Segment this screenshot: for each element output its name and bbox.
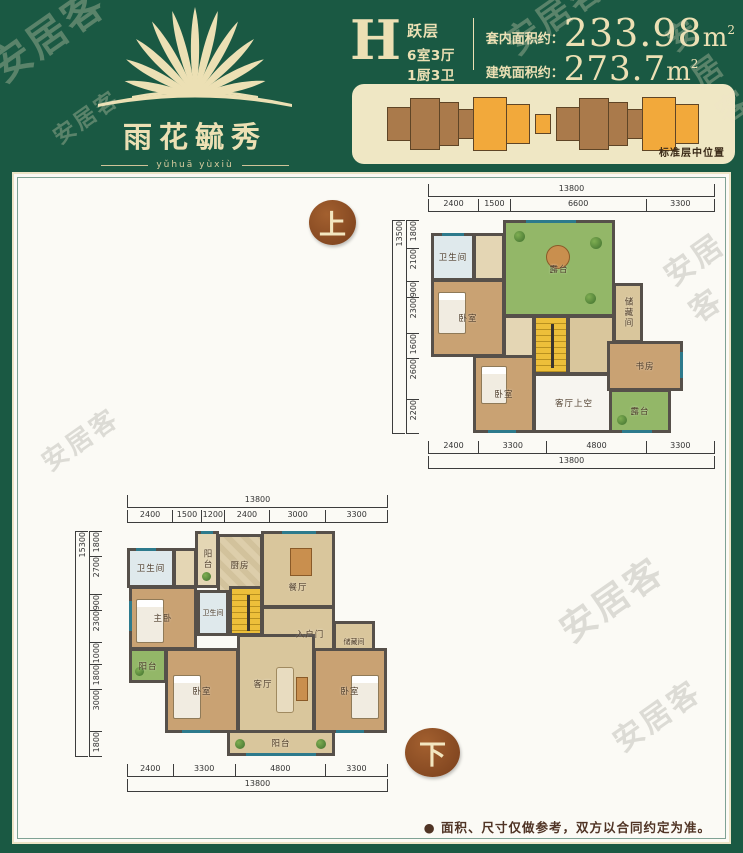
lower-balcony-left: 阳台 bbox=[129, 648, 167, 683]
dim-label: 13800 bbox=[559, 456, 584, 466]
lower-plan-body: 卫生间 阳台 厨房 餐厅 bbox=[127, 531, 387, 756]
building-unit-block bbox=[506, 104, 530, 144]
room-label: 卧室 bbox=[340, 685, 359, 697]
lower-bedroom-right: 卧室 bbox=[313, 648, 387, 733]
room-label: 储藏间 bbox=[622, 297, 634, 329]
unit-letter: H bbox=[350, 14, 401, 66]
dim-segment: 1800 bbox=[89, 731, 102, 757]
dim-label: 3300 bbox=[194, 764, 214, 774]
window bbox=[488, 430, 516, 433]
lower-balcony-top: 阳台 bbox=[195, 531, 219, 588]
building-connector-block bbox=[535, 114, 551, 134]
inner-area-value: 233.98 bbox=[564, 14, 703, 52]
dim-label: 2400 bbox=[443, 199, 463, 209]
dim-segment: 2700 bbox=[89, 556, 102, 595]
room-label: 阳台 bbox=[138, 660, 157, 672]
lower-floor-plan: 13800 2400 1500 1200 2400 3000 3300 1530… bbox=[75, 495, 405, 805]
standard-floor-strip: 标准层中位置 bbox=[352, 84, 735, 164]
dim-label: 4800 bbox=[586, 441, 606, 451]
dim-segment: 2400 bbox=[127, 510, 173, 523]
lower-dim-bottom-total: 13800 bbox=[127, 779, 387, 792]
unit-m: m bbox=[703, 23, 728, 53]
room-label: 储藏间 bbox=[344, 637, 365, 647]
lower-bedroom-left: 卧室 bbox=[165, 648, 239, 733]
marker-label: 上 bbox=[319, 203, 346, 242]
dim-segment: 2300 bbox=[89, 610, 102, 643]
dim-label: 13800 bbox=[245, 779, 270, 789]
upper-dim-left-total: 13500 bbox=[392, 220, 405, 433]
brand-name: 雨花毓秀 bbox=[55, 114, 335, 156]
brand-logo: 雨花毓秀 yǔhuā yùxiù bbox=[55, 4, 335, 166]
building-unit-block bbox=[675, 104, 699, 144]
dim-label: 1800 bbox=[92, 665, 101, 685]
dim-segment: 1500 bbox=[478, 199, 511, 212]
bed-icon bbox=[351, 675, 379, 719]
pinyin-line-right bbox=[242, 165, 289, 166]
window bbox=[336, 730, 364, 733]
plant-icon bbox=[202, 572, 211, 581]
window bbox=[129, 601, 132, 631]
dim-segment: 1600 bbox=[406, 333, 419, 359]
lower-dim-top-segments: 2400 1500 1200 2400 3000 3300 bbox=[127, 510, 387, 523]
dim-segment: 2600 bbox=[406, 358, 419, 399]
dim-segment: 3300 bbox=[325, 510, 388, 523]
building-unit-block bbox=[473, 97, 507, 151]
lower-master-bedroom: 主卧 bbox=[129, 586, 197, 650]
window bbox=[182, 730, 210, 733]
floor-plan-page: 雨花毓秀 yǔhuā yùxiù H 跃层 6室3厅1厨3卫3阳台 套内面积约：… bbox=[0, 0, 743, 853]
dim-label: 3300 bbox=[503, 441, 523, 451]
room-label: 厨房 bbox=[230, 559, 249, 571]
inner-area-row: 套内面积约： 233.98 m2 bbox=[486, 14, 735, 52]
dim-segment: 3000 bbox=[269, 510, 326, 523]
upper-terrace-small: 露台 bbox=[609, 389, 671, 433]
building-unit-block bbox=[627, 109, 643, 139]
dim-segment: 13800 bbox=[428, 456, 715, 469]
building-unit-block bbox=[556, 107, 580, 141]
plant-icon bbox=[617, 415, 627, 425]
plant-icon bbox=[585, 293, 596, 304]
unit-sup2: 2 bbox=[691, 57, 699, 71]
upper-floor-plan: 13800 2400 1500 6600 3300 13500 1800 210… bbox=[392, 184, 728, 494]
upper-bedroom-bottom: 卧室 bbox=[473, 355, 535, 433]
build-area-row: 建筑面积约： 273.7 m2 bbox=[486, 52, 735, 86]
building-wing-right bbox=[557, 97, 699, 151]
dim-label: 2600 bbox=[409, 359, 418, 379]
dim-segment: 13500 bbox=[392, 220, 405, 434]
room-label: 露台 bbox=[549, 263, 568, 275]
dim-label: 3300 bbox=[670, 199, 690, 209]
marker-label: 下 bbox=[419, 733, 446, 772]
dim-label: 15300 bbox=[78, 532, 87, 557]
upper-dim-top-segments: 2400 1500 6600 3300 bbox=[428, 199, 714, 212]
dim-label: 1800 bbox=[92, 732, 101, 752]
dim-label: 13500 bbox=[395, 221, 404, 246]
dim-label: 3300 bbox=[346, 764, 366, 774]
window bbox=[246, 753, 316, 756]
lower-bathroom-top: 卫生间 bbox=[127, 548, 175, 588]
window bbox=[136, 548, 156, 551]
dim-segment: 3300 bbox=[646, 441, 715, 454]
building-wing-left bbox=[388, 97, 530, 151]
upper-staircase bbox=[533, 315, 569, 375]
dim-segment: 3300 bbox=[646, 199, 715, 212]
building-unit-block bbox=[387, 107, 411, 141]
dim-segment: 1800 bbox=[406, 220, 419, 249]
dim-label: 2300 bbox=[409, 298, 418, 318]
window bbox=[526, 220, 576, 223]
dim-label: 2400 bbox=[140, 764, 160, 774]
unit-m2: m bbox=[666, 57, 691, 87]
dim-label: 2700 bbox=[92, 557, 101, 577]
upper-dim-bottom-total: 13800 bbox=[428, 456, 714, 469]
bed-icon bbox=[173, 675, 201, 719]
dim-label: 13800 bbox=[559, 184, 584, 194]
window bbox=[282, 531, 316, 534]
stair-rail bbox=[247, 595, 250, 631]
upper-plan-body: 卫生间 露台 卧室 bbox=[428, 220, 714, 433]
disclaimer-text: ● 面积、尺寸仅做参考，双方以合同约定为准。 bbox=[424, 817, 711, 836]
dim-segment: 2400 bbox=[428, 441, 479, 454]
upper-floor-marker: 上 bbox=[309, 200, 356, 245]
dim-segment: 2400 bbox=[428, 199, 479, 212]
dim-label: 2100 bbox=[409, 249, 418, 269]
dim-segment: 2400 bbox=[224, 510, 270, 523]
dim-label: 1500 bbox=[177, 510, 197, 520]
dim-label: 3300 bbox=[670, 441, 690, 451]
window bbox=[442, 233, 464, 236]
stair-rail bbox=[551, 324, 554, 368]
dim-segment: 900 bbox=[89, 594, 102, 611]
inner-area-label: 套内面积约： bbox=[486, 33, 564, 52]
dim-label: 3300 bbox=[346, 510, 366, 520]
plant-icon bbox=[590, 237, 602, 249]
inner-area-unit: m2 bbox=[703, 25, 735, 52]
upper-terrace: 露台 bbox=[503, 220, 615, 317]
dim-label: 900 bbox=[92, 595, 101, 610]
lower-hallway-top bbox=[173, 548, 197, 588]
lower-dim-left-segments: 1800 2700 900 2300 1000 1800 3000 1800 bbox=[89, 531, 102, 756]
dim-segment: 2300 bbox=[406, 297, 419, 334]
dim-segment: 2400 bbox=[127, 764, 174, 777]
dim-label: 900 bbox=[409, 282, 418, 297]
unit-type-label: 跃层 bbox=[407, 20, 461, 41]
lower-living-room: 客厅 bbox=[237, 634, 315, 733]
area-column: 套内面积约： 233.98 m2 建筑面积约： 273.7 m2 bbox=[486, 14, 735, 86]
dim-segment: 4800 bbox=[546, 441, 646, 454]
header-divider bbox=[473, 18, 474, 70]
upper-living-void: 客厅上空 bbox=[533, 373, 615, 433]
dim-label: 6600 bbox=[568, 199, 588, 209]
lower-dim-bottom-segments: 2400 3300 4800 3300 bbox=[127, 764, 387, 777]
dim-label: 3000 bbox=[287, 510, 307, 520]
dim-segment: 15300 bbox=[75, 531, 88, 757]
window bbox=[680, 352, 683, 378]
plant-icon bbox=[316, 739, 326, 749]
dim-segment: 3300 bbox=[478, 441, 547, 454]
entry-door-label: 入户门 bbox=[296, 628, 325, 640]
dim-label: 1800 bbox=[92, 532, 101, 552]
lower-floor-marker: 下 bbox=[405, 728, 460, 777]
dim-label: 1500 bbox=[484, 199, 504, 209]
building-unit-block bbox=[579, 98, 609, 150]
upper-dim-bottom-segments: 2400 3300 4800 3300 bbox=[428, 441, 714, 454]
upper-study: 书房 bbox=[607, 341, 683, 391]
dim-label: 2200 bbox=[409, 400, 418, 420]
dim-segment: 13800 bbox=[428, 184, 715, 197]
dim-segment: 2100 bbox=[406, 248, 419, 282]
dim-label: 3000 bbox=[92, 690, 101, 710]
upper-dim-top-total: 13800 bbox=[428, 184, 714, 197]
window bbox=[201, 531, 213, 534]
building-unit-block bbox=[458, 109, 474, 139]
dim-label: 1600 bbox=[409, 334, 418, 354]
building-unit-block bbox=[439, 102, 459, 146]
unit-sup: 2 bbox=[727, 23, 735, 37]
room-label: 卧室 bbox=[494, 388, 513, 400]
lower-bathroom-mid: 卫生间 bbox=[197, 590, 229, 636]
upper-bedroom-left: 卧室 bbox=[431, 279, 505, 357]
room-label: 主卧 bbox=[153, 612, 172, 624]
room-label: 阳台 bbox=[201, 549, 213, 570]
dim-label: 2400 bbox=[443, 441, 463, 451]
lower-dining: 餐厅 bbox=[261, 531, 335, 608]
dim-segment: 1200 bbox=[201, 510, 225, 523]
dim-segment: 3000 bbox=[89, 689, 102, 732]
dim-segment: 3300 bbox=[173, 764, 236, 777]
upper-dim-left-segments: 1800 2100 900 2300 1600 2600 2200 bbox=[406, 220, 419, 433]
building-unit-block bbox=[642, 97, 676, 151]
room-label: 客厅 bbox=[253, 678, 272, 690]
build-area-unit: m2 bbox=[666, 59, 698, 86]
dim-segment: 1000 bbox=[89, 642, 102, 664]
dim-segment: 1500 bbox=[172, 510, 202, 523]
sofa-icon bbox=[276, 667, 294, 713]
dim-label: 2400 bbox=[237, 510, 257, 520]
upper-bathroom: 卫生间 bbox=[431, 233, 475, 281]
building-unit-block bbox=[410, 98, 440, 150]
plan-panel: 13800 2400 1500 6600 3300 13500 1800 210… bbox=[12, 172, 731, 844]
brand-pinyin: yǔhuā yùxiù bbox=[148, 160, 241, 170]
building-unit-block bbox=[608, 102, 628, 146]
lower-staircase bbox=[229, 586, 263, 636]
dim-segment: 4800 bbox=[235, 764, 326, 777]
room-label: 卫生间 bbox=[203, 608, 224, 618]
dim-segment: 2200 bbox=[406, 399, 419, 434]
plant-icon bbox=[235, 739, 245, 749]
lower-dim-left-total: 15300 bbox=[75, 531, 88, 756]
dim-segment: 1800 bbox=[89, 664, 102, 690]
dim-label: 1000 bbox=[92, 643, 101, 663]
room-label: 露台 bbox=[630, 405, 649, 417]
dim-label: 4800 bbox=[270, 764, 290, 774]
dim-segment: 13800 bbox=[127, 495, 388, 508]
fan-logo-icon bbox=[80, 4, 310, 108]
room-label: 卧室 bbox=[458, 312, 477, 324]
strip-caption: 标准层中位置 bbox=[659, 144, 725, 159]
brand-pinyin-row: yǔhuā yùxiù bbox=[101, 160, 289, 170]
dining-table-icon bbox=[290, 548, 312, 576]
room-label: 阳台 bbox=[271, 737, 290, 749]
dim-label: 1200 bbox=[203, 510, 223, 520]
room-label: 卫生间 bbox=[137, 562, 166, 574]
upper-hallway bbox=[473, 233, 505, 281]
room-label: 卫生间 bbox=[439, 251, 468, 263]
plant-icon bbox=[514, 231, 525, 242]
lower-dim-top-total: 13800 bbox=[127, 495, 387, 508]
window bbox=[622, 430, 652, 433]
dim-label: 2400 bbox=[140, 510, 160, 520]
upper-storage: 储藏间 bbox=[613, 283, 643, 343]
dim-segment: 13800 bbox=[127, 779, 388, 792]
room-label: 卧室 bbox=[192, 685, 211, 697]
room-label: 客厅上空 bbox=[555, 397, 593, 409]
build-area-value: 273.7 bbox=[564, 52, 666, 86]
dim-segment: 6600 bbox=[510, 199, 647, 212]
dim-label: 1800 bbox=[409, 221, 418, 241]
lower-balcony-bottom: 阳台 bbox=[227, 730, 335, 756]
dim-label: 2300 bbox=[92, 611, 101, 631]
dim-segment: 3300 bbox=[325, 764, 388, 777]
room-label: 书房 bbox=[635, 360, 654, 372]
dim-segment: 900 bbox=[406, 281, 419, 298]
pinyin-line-left bbox=[101, 165, 148, 166]
coffee-table-icon bbox=[296, 677, 308, 701]
room-label: 餐厅 bbox=[288, 581, 307, 593]
dim-label: 13800 bbox=[245, 495, 270, 505]
dim-segment: 1800 bbox=[89, 531, 102, 557]
